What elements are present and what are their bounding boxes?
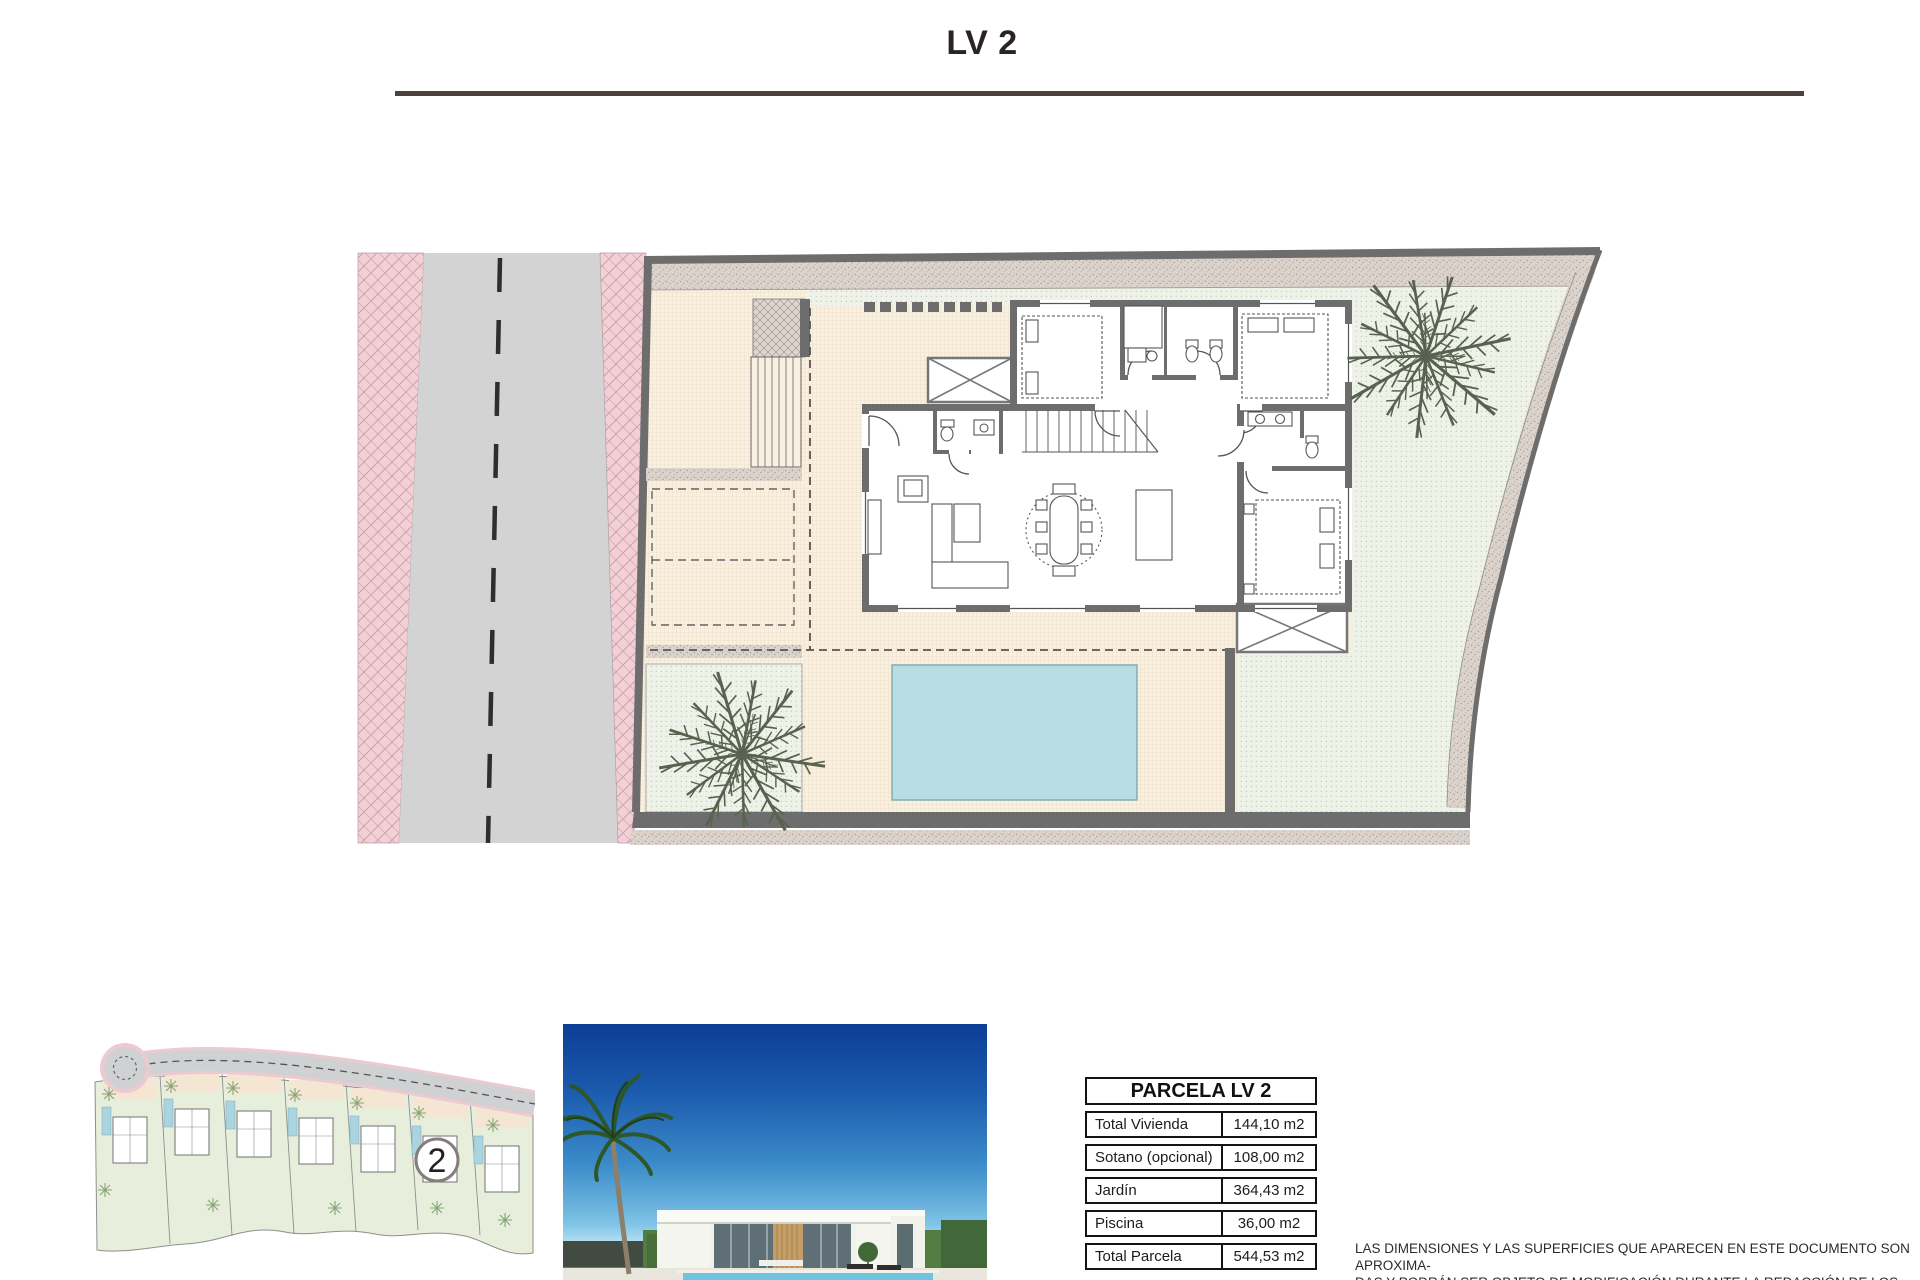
shower <box>1124 306 1162 348</box>
garden-wall <box>1225 648 1235 812</box>
row-label: Sotano (opcional) <box>1087 1146 1221 1169</box>
row-label: Total Parcela <box>1087 1245 1221 1268</box>
table-row: Total Vivienda 144,10 m2 <box>1085 1111 1317 1138</box>
pool <box>892 665 1137 800</box>
road <box>358 253 646 843</box>
row-value: 364,43 m2 <box>1221 1179 1315 1202</box>
title-rule <box>395 91 1804 96</box>
table-row: Jardín 364,43 m2 <box>1085 1177 1317 1204</box>
row-label: Total Vivienda <box>1087 1113 1221 1136</box>
kitchen-island <box>1136 490 1172 560</box>
site-plan <box>350 245 1640 850</box>
dining-table <box>1050 496 1078 564</box>
villa-photo <box>563 1024 987 1280</box>
table-header: PARCELA LV 2 <box>1085 1077 1317 1105</box>
tv-unit <box>868 500 881 554</box>
pergola-slats <box>864 302 1002 312</box>
photo-villa <box>657 1210 949 1271</box>
row-label: Jardín <box>1087 1179 1221 1202</box>
table-row: Sotano (opcional) 108,00 m2 <box>1085 1144 1317 1171</box>
gravel-strip-bottom <box>630 830 1470 845</box>
overview-map: 2 <box>85 1030 535 1260</box>
entry-stairs <box>751 357 801 467</box>
row-value: 108,00 m2 <box>1221 1146 1315 1169</box>
table-row: Piscina 36,00 m2 <box>1085 1210 1317 1237</box>
row-value: 144,10 m2 <box>1221 1113 1315 1136</box>
disclaimer-line: DAS Y PODRÁN SER OBJETO DE MODIFICACIÓN … <box>1355 1274 1920 1280</box>
plot-marker-number: 2 <box>428 1142 447 1180</box>
row-label: Piscina <box>1087 1212 1221 1235</box>
table-row: Total Parcela 544,53 m2 <box>1085 1243 1317 1270</box>
page-title: LV 2 <box>946 24 1017 63</box>
photo-pool <box>683 1273 933 1280</box>
photo-scene <box>563 1024 987 1280</box>
sofa <box>932 504 952 566</box>
disclaimer-text: LAS DIMENSIONES Y LAS SUPERFICIES QUE AP… <box>1355 1240 1920 1280</box>
road-surface <box>399 253 620 843</box>
plan-sheet: LV 2 <box>0 0 1920 1280</box>
row-value: 36,00 m2 <box>1221 1212 1315 1235</box>
disclaimer-line: LAS DIMENSIONES Y LAS SUPERFICIES QUE AP… <box>1355 1240 1920 1274</box>
row-value: 544,53 m2 <box>1221 1245 1315 1268</box>
parcel-table: PARCELA LV 2 Total Vivienda 144,10 m2 So… <box>1085 1077 1317 1276</box>
